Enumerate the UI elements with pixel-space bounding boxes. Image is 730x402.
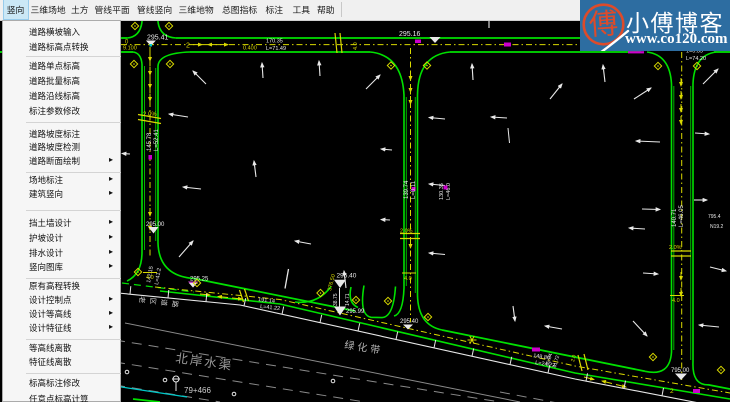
svg-text:140.71: 140.71 <box>672 208 678 227</box>
svg-text:139.74: 139.74 <box>404 180 410 199</box>
svg-text:L=0.11: L=0.11 <box>411 180 417 199</box>
svg-text:L=46.05: L=46.05 <box>679 204 685 227</box>
svg-text:795.00: 795.00 <box>671 368 690 374</box>
svg-text:145.78: 145.78 <box>147 132 153 151</box>
svg-text:295.99: 295.99 <box>346 309 365 315</box>
svg-text:4.0: 4.0 <box>404 276 412 282</box>
svg-text:区: 区 <box>148 297 157 305</box>
svg-text:295.16: 295.16 <box>399 31 421 38</box>
svg-text:傅: 傅 <box>588 7 619 42</box>
svg-text:L=71.49: L=71.49 <box>266 46 286 52</box>
svg-text:0.400: 0.400 <box>243 46 257 52</box>
svg-text:2.0%: 2.0% <box>143 112 157 118</box>
svg-text:4.0: 4.0 <box>672 298 680 304</box>
svg-text:N19.2: N19.2 <box>710 224 724 230</box>
svg-text:2: 2 <box>186 43 190 50</box>
svg-text:2.0%: 2.0% <box>669 245 682 251</box>
svg-text:295.40: 295.40 <box>337 273 357 280</box>
svg-text:4.0: 4.0 <box>353 42 359 50</box>
svg-text:795.4: 795.4 <box>708 214 721 220</box>
svg-text:2: 2 <box>670 388 674 395</box>
svg-text:L=74.20: L=74.20 <box>686 56 706 62</box>
svg-text:2.0%: 2.0% <box>400 229 413 235</box>
svg-text:170.35: 170.35 <box>266 39 283 45</box>
svg-text:9.100: 9.100 <box>123 46 137 52</box>
svg-text:79+466: 79+466 <box>184 386 211 395</box>
svg-text:14.71: 14.71 <box>345 293 351 306</box>
svg-text:38.75: 38.75 <box>333 293 339 306</box>
svg-text:4.0: 4.0 <box>146 275 154 281</box>
svg-text:295.40: 295.40 <box>400 319 419 325</box>
svg-text:295.41: 295.41 <box>147 35 169 42</box>
svg-text:L=52.41: L=52.41 <box>154 128 160 151</box>
